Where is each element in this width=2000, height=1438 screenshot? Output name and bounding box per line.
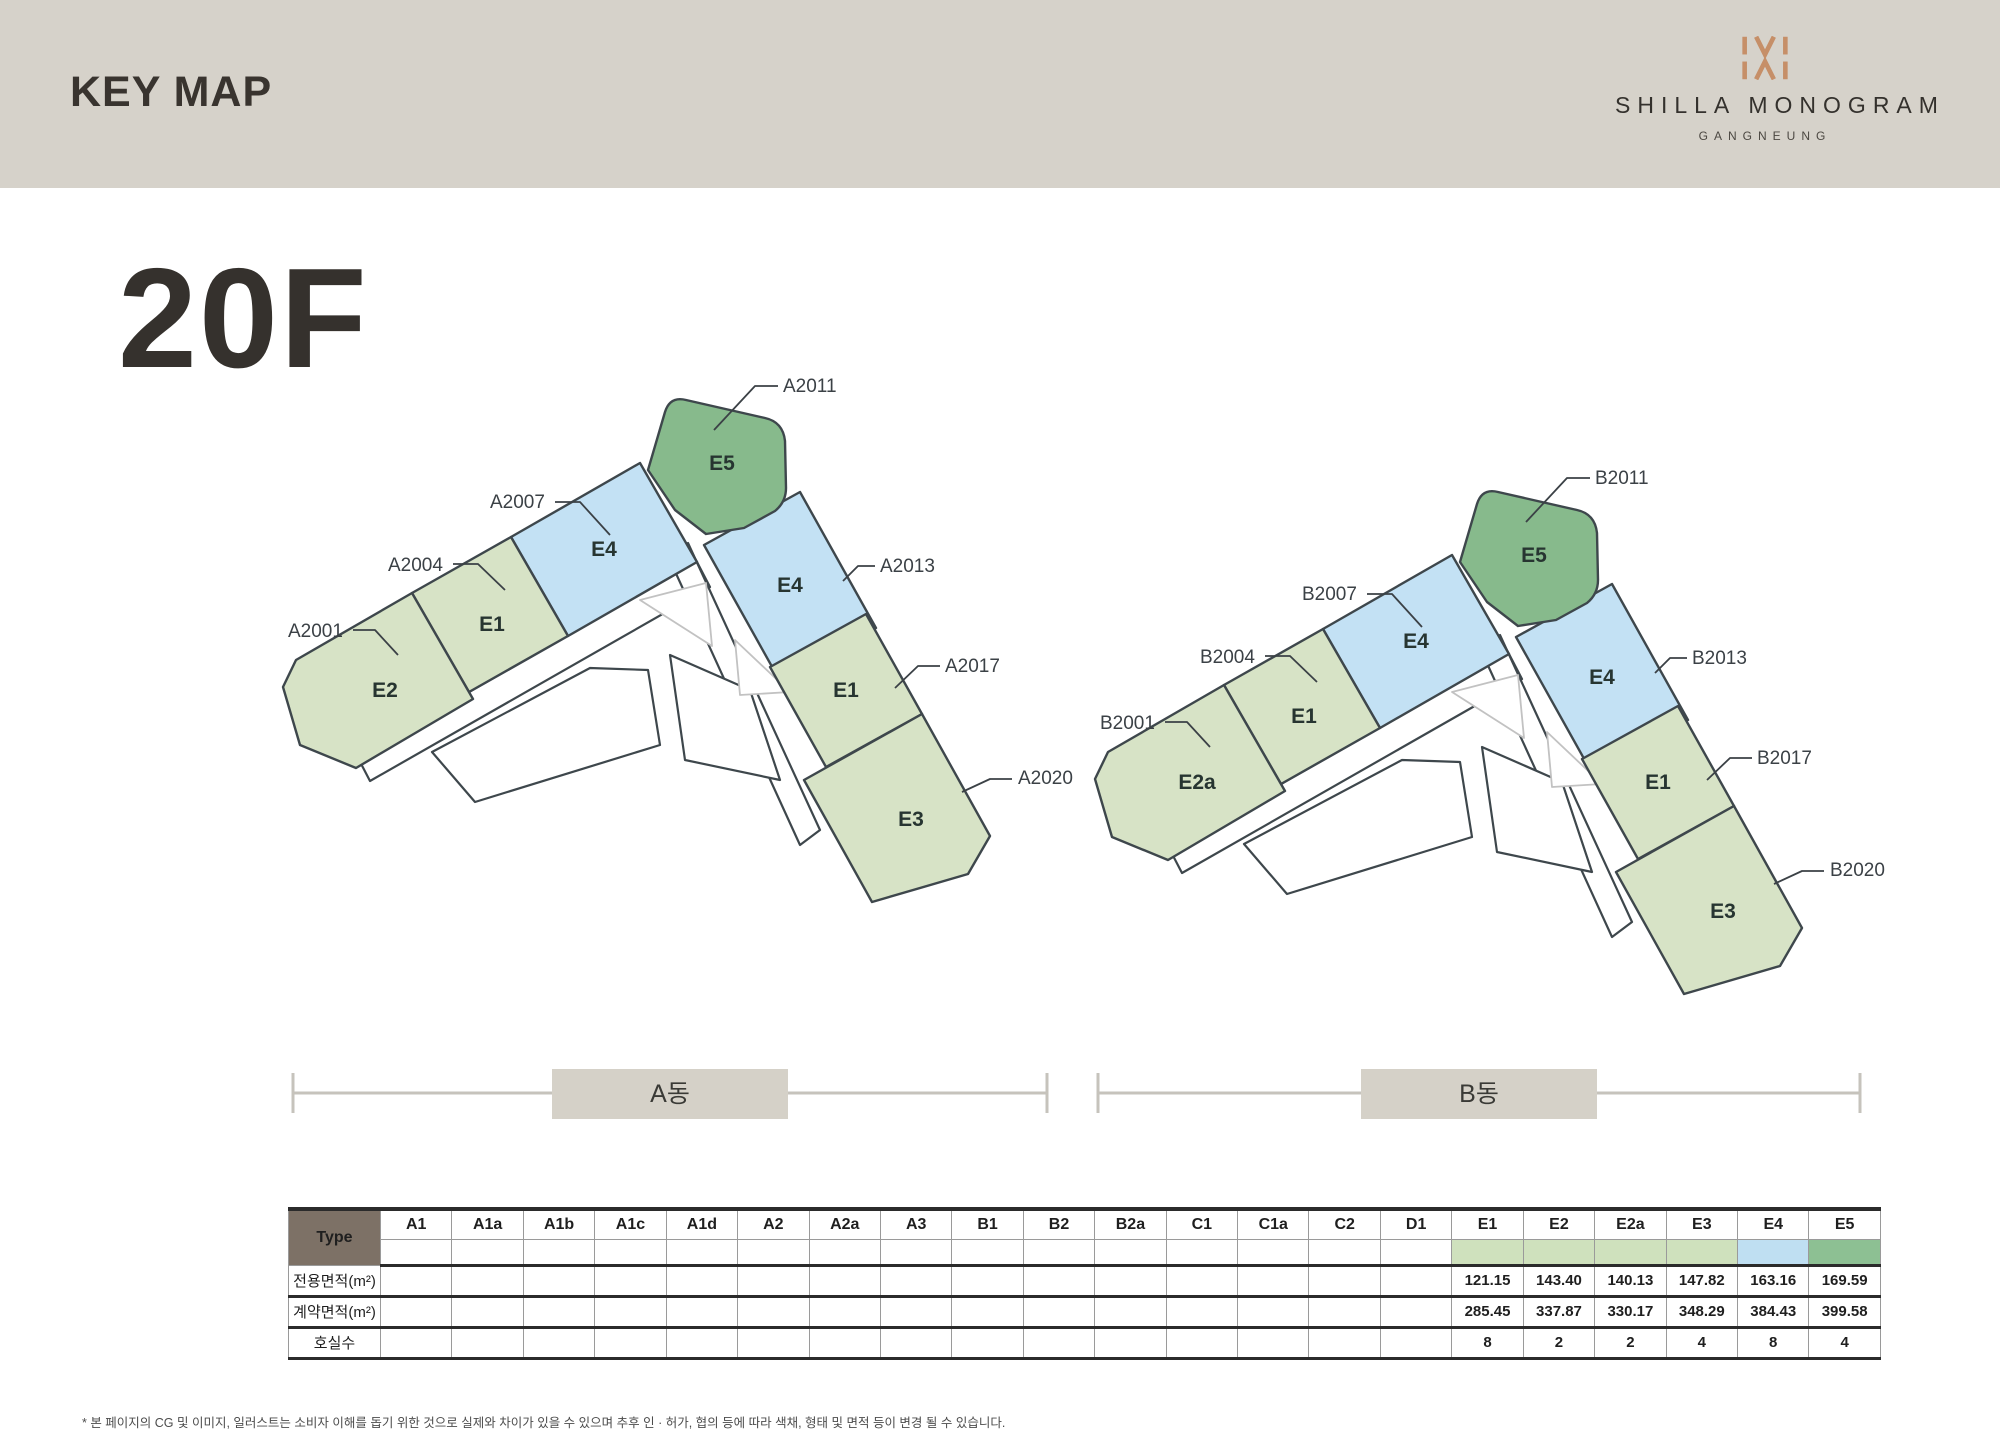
- value-cell: [809, 1265, 880, 1296]
- unit-label: E1: [1645, 771, 1671, 794]
- unit-label: E3: [898, 808, 924, 831]
- table-data-row: 계약면적(m²)285.45337.87330.17348.29384.4339…: [289, 1296, 1881, 1327]
- swatch-cell: [1452, 1239, 1523, 1265]
- unit-label: E2: [372, 679, 398, 702]
- value-cell: [1166, 1296, 1237, 1327]
- callout-label: B2020: [1830, 860, 1885, 881]
- value-cell: [1380, 1265, 1451, 1296]
- value-cell: [381, 1265, 452, 1296]
- swatch-cell: [1166, 1239, 1237, 1265]
- value-cell: [952, 1265, 1023, 1296]
- value-cell: [880, 1265, 951, 1296]
- swatch-cell: [452, 1239, 523, 1265]
- value-cell: [880, 1296, 951, 1327]
- table-header-row: TypeA1A1aA1bA1cA1dA2A2aA3B1B2B2aC1C1aC2D…: [289, 1209, 1881, 1239]
- value-cell: [738, 1265, 809, 1296]
- column-header-cell: A2: [738, 1209, 809, 1239]
- table-swatch-row: [289, 1239, 1881, 1265]
- swatch-cell: [1523, 1239, 1594, 1265]
- value-cell: [666, 1296, 737, 1327]
- column-header-cell: A1d: [666, 1209, 737, 1239]
- row-label-cell: 계약면적(m²): [289, 1296, 381, 1327]
- unit-label: E4: [591, 538, 617, 561]
- footnote: * 본 페이지의 CG 및 이미지, 일러스트는 소비자 이해를 돕기 위한 것…: [82, 1412, 1005, 1431]
- value-cell: [1309, 1327, 1380, 1358]
- value-cell: 2: [1595, 1327, 1666, 1358]
- swatch-cell: [1238, 1239, 1309, 1265]
- column-header-cell: E2: [1523, 1209, 1594, 1239]
- swatch-cell: [523, 1239, 594, 1265]
- value-cell: 2: [1523, 1327, 1594, 1358]
- column-header-cell: A1: [381, 1209, 452, 1239]
- value-cell: 169.59: [1809, 1265, 1880, 1296]
- value-cell: [1095, 1265, 1166, 1296]
- callout-label: A2013: [880, 556, 935, 577]
- value-cell: 348.29: [1666, 1296, 1737, 1327]
- wing-b-name: B동: [1459, 1080, 1499, 1108]
- value-cell: [381, 1327, 452, 1358]
- callout-label: A2007: [490, 492, 545, 513]
- unit-label: E2a: [1178, 771, 1216, 794]
- value-cell: [452, 1327, 523, 1358]
- column-header-cell: A2a: [809, 1209, 880, 1239]
- column-header-cell: C1: [1166, 1209, 1237, 1239]
- swatch-cell: [1095, 1239, 1166, 1265]
- value-cell: [1166, 1265, 1237, 1296]
- column-header-cell: E5: [1809, 1209, 1880, 1239]
- value-cell: 140.13: [1595, 1265, 1666, 1296]
- swatch-cell: [1666, 1239, 1737, 1265]
- unit-label: E1: [479, 613, 505, 636]
- value-cell: [1023, 1265, 1094, 1296]
- value-cell: [666, 1265, 737, 1296]
- swatch-cell: [1809, 1239, 1880, 1265]
- value-cell: [452, 1296, 523, 1327]
- callout-label: A2004: [388, 555, 443, 576]
- swatch-cell: [952, 1239, 1023, 1265]
- value-cell: [1095, 1296, 1166, 1327]
- column-header-cell: C2: [1309, 1209, 1380, 1239]
- value-cell: [1380, 1327, 1451, 1358]
- column-header-cell: C1a: [1238, 1209, 1309, 1239]
- column-header-cell: E2a: [1595, 1209, 1666, 1239]
- column-header-cell: E3: [1666, 1209, 1737, 1239]
- callout-label: B2007: [1302, 584, 1357, 605]
- column-header-cell: E4: [1738, 1209, 1809, 1239]
- table-data-row: 전용면적(m²)121.15143.40140.13147.82163.1616…: [289, 1265, 1881, 1296]
- spec-table: TypeA1A1aA1bA1cA1dA2A2aA3B1B2B2aC1C1aC2D…: [288, 1207, 1881, 1360]
- value-cell: [523, 1296, 594, 1327]
- value-cell: [1309, 1265, 1380, 1296]
- swatch-cell: [1309, 1239, 1380, 1265]
- value-cell: 8: [1738, 1327, 1809, 1358]
- value-cell: [738, 1296, 809, 1327]
- value-cell: [452, 1265, 523, 1296]
- unit-label: E5: [1521, 544, 1547, 567]
- value-cell: 121.15: [1452, 1265, 1523, 1296]
- callout-label: A2020: [1018, 768, 1073, 789]
- unit-label: E5: [709, 452, 735, 475]
- value-cell: [595, 1296, 666, 1327]
- callout-label: A2001: [288, 621, 343, 642]
- column-header-cell: A1a: [452, 1209, 523, 1239]
- value-cell: [595, 1327, 666, 1358]
- column-header-cell: D1: [1380, 1209, 1451, 1239]
- value-cell: 330.17: [1595, 1296, 1666, 1327]
- value-cell: [523, 1327, 594, 1358]
- column-header-cell: B1: [952, 1209, 1023, 1239]
- swatch-cell: [1380, 1239, 1451, 1265]
- swatch-cell: [1023, 1239, 1094, 1265]
- value-cell: 147.82: [1666, 1265, 1737, 1296]
- value-cell: [1023, 1296, 1094, 1327]
- column-header-cell: A1b: [523, 1209, 594, 1239]
- dimension-lines: [293, 1073, 1860, 1113]
- value-cell: 143.40: [1523, 1265, 1594, 1296]
- value-cell: [952, 1327, 1023, 1358]
- value-cell: [738, 1327, 809, 1358]
- column-header-cell: E1: [1452, 1209, 1523, 1239]
- value-cell: 4: [1809, 1327, 1880, 1358]
- swatch-cell: [666, 1239, 737, 1265]
- wing-a-name: A동: [650, 1080, 690, 1108]
- value-cell: [1023, 1327, 1094, 1358]
- value-cell: 4: [1666, 1327, 1737, 1358]
- type-corner-cell: Type: [289, 1209, 381, 1265]
- value-cell: 163.16: [1738, 1265, 1809, 1296]
- swatch-cell: [809, 1239, 880, 1265]
- swatch-cell: [381, 1239, 452, 1265]
- swatch-cell: [738, 1239, 809, 1265]
- value-cell: [595, 1265, 666, 1296]
- column-header-cell: A1c: [595, 1209, 666, 1239]
- unit-label: E4: [1403, 630, 1429, 653]
- swatch-cell: [1595, 1239, 1666, 1265]
- row-label-cell: 전용면적(m²): [289, 1265, 381, 1296]
- swatch-cell: [880, 1239, 951, 1265]
- swatch-cell: [1738, 1239, 1809, 1265]
- column-header-cell: B2a: [1095, 1209, 1166, 1239]
- value-cell: [1166, 1327, 1237, 1358]
- value-cell: 337.87: [1523, 1296, 1594, 1327]
- callout-label: B2001: [1100, 713, 1155, 734]
- spec-table-wrap: TypeA1A1aA1bA1cA1dA2A2aA3B1B2B2aC1C1aC2D…: [288, 1207, 1880, 1360]
- unit-label: E1: [833, 679, 859, 702]
- value-cell: [809, 1327, 880, 1358]
- unit-label: E3: [1710, 900, 1736, 923]
- value-cell: [1238, 1265, 1309, 1296]
- row-label-cell: 호실수: [289, 1327, 381, 1358]
- callout-label: A2011: [783, 376, 837, 397]
- value-cell: 285.45: [1452, 1296, 1523, 1327]
- callout-label: B2004: [1200, 647, 1255, 668]
- column-header-cell: B2: [1023, 1209, 1094, 1239]
- callout-label: B2011: [1595, 468, 1649, 489]
- value-cell: 8: [1452, 1327, 1523, 1358]
- value-cell: [880, 1327, 951, 1358]
- value-cell: [523, 1265, 594, 1296]
- value-cell: 399.58: [1809, 1296, 1880, 1327]
- callout-label: B2017: [1757, 748, 1812, 769]
- unit-label: E4: [777, 574, 803, 597]
- unit-label: E4: [1589, 666, 1615, 689]
- callout-label: B2013: [1692, 648, 1747, 669]
- value-cell: [952, 1296, 1023, 1327]
- value-cell: [809, 1296, 880, 1327]
- table-data-row: 호실수822484: [289, 1327, 1881, 1358]
- swatch-cell: [595, 1239, 666, 1265]
- value-cell: [666, 1327, 737, 1358]
- value-cell: [1309, 1296, 1380, 1327]
- value-cell: [1380, 1296, 1451, 1327]
- column-header-cell: A3: [880, 1209, 951, 1239]
- page: { "header": { "title": "KEY MAP", "brand…: [0, 0, 2000, 1438]
- value-cell: [1095, 1327, 1166, 1358]
- value-cell: 384.43: [1738, 1296, 1809, 1327]
- callout-label: A2017: [945, 656, 1000, 677]
- value-cell: [1238, 1327, 1309, 1358]
- value-cell: [381, 1296, 452, 1327]
- value-cell: [1238, 1296, 1309, 1327]
- unit-label: E1: [1291, 705, 1317, 728]
